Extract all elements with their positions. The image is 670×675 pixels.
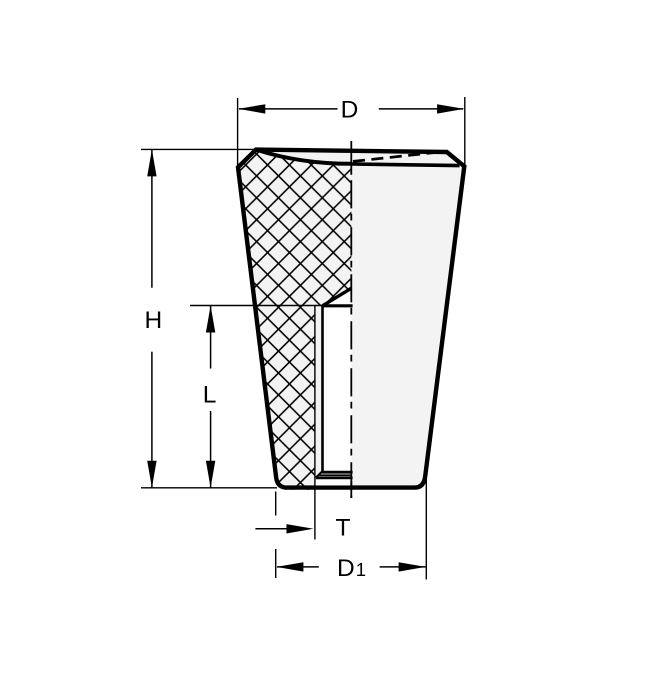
- svg-text:T: T: [336, 514, 351, 541]
- svg-text:H: H: [144, 307, 162, 334]
- svg-text:D: D: [337, 555, 355, 582]
- svg-text:L: L: [203, 382, 217, 409]
- svg-text:D: D: [341, 97, 359, 124]
- svg-text:1: 1: [356, 559, 366, 580]
